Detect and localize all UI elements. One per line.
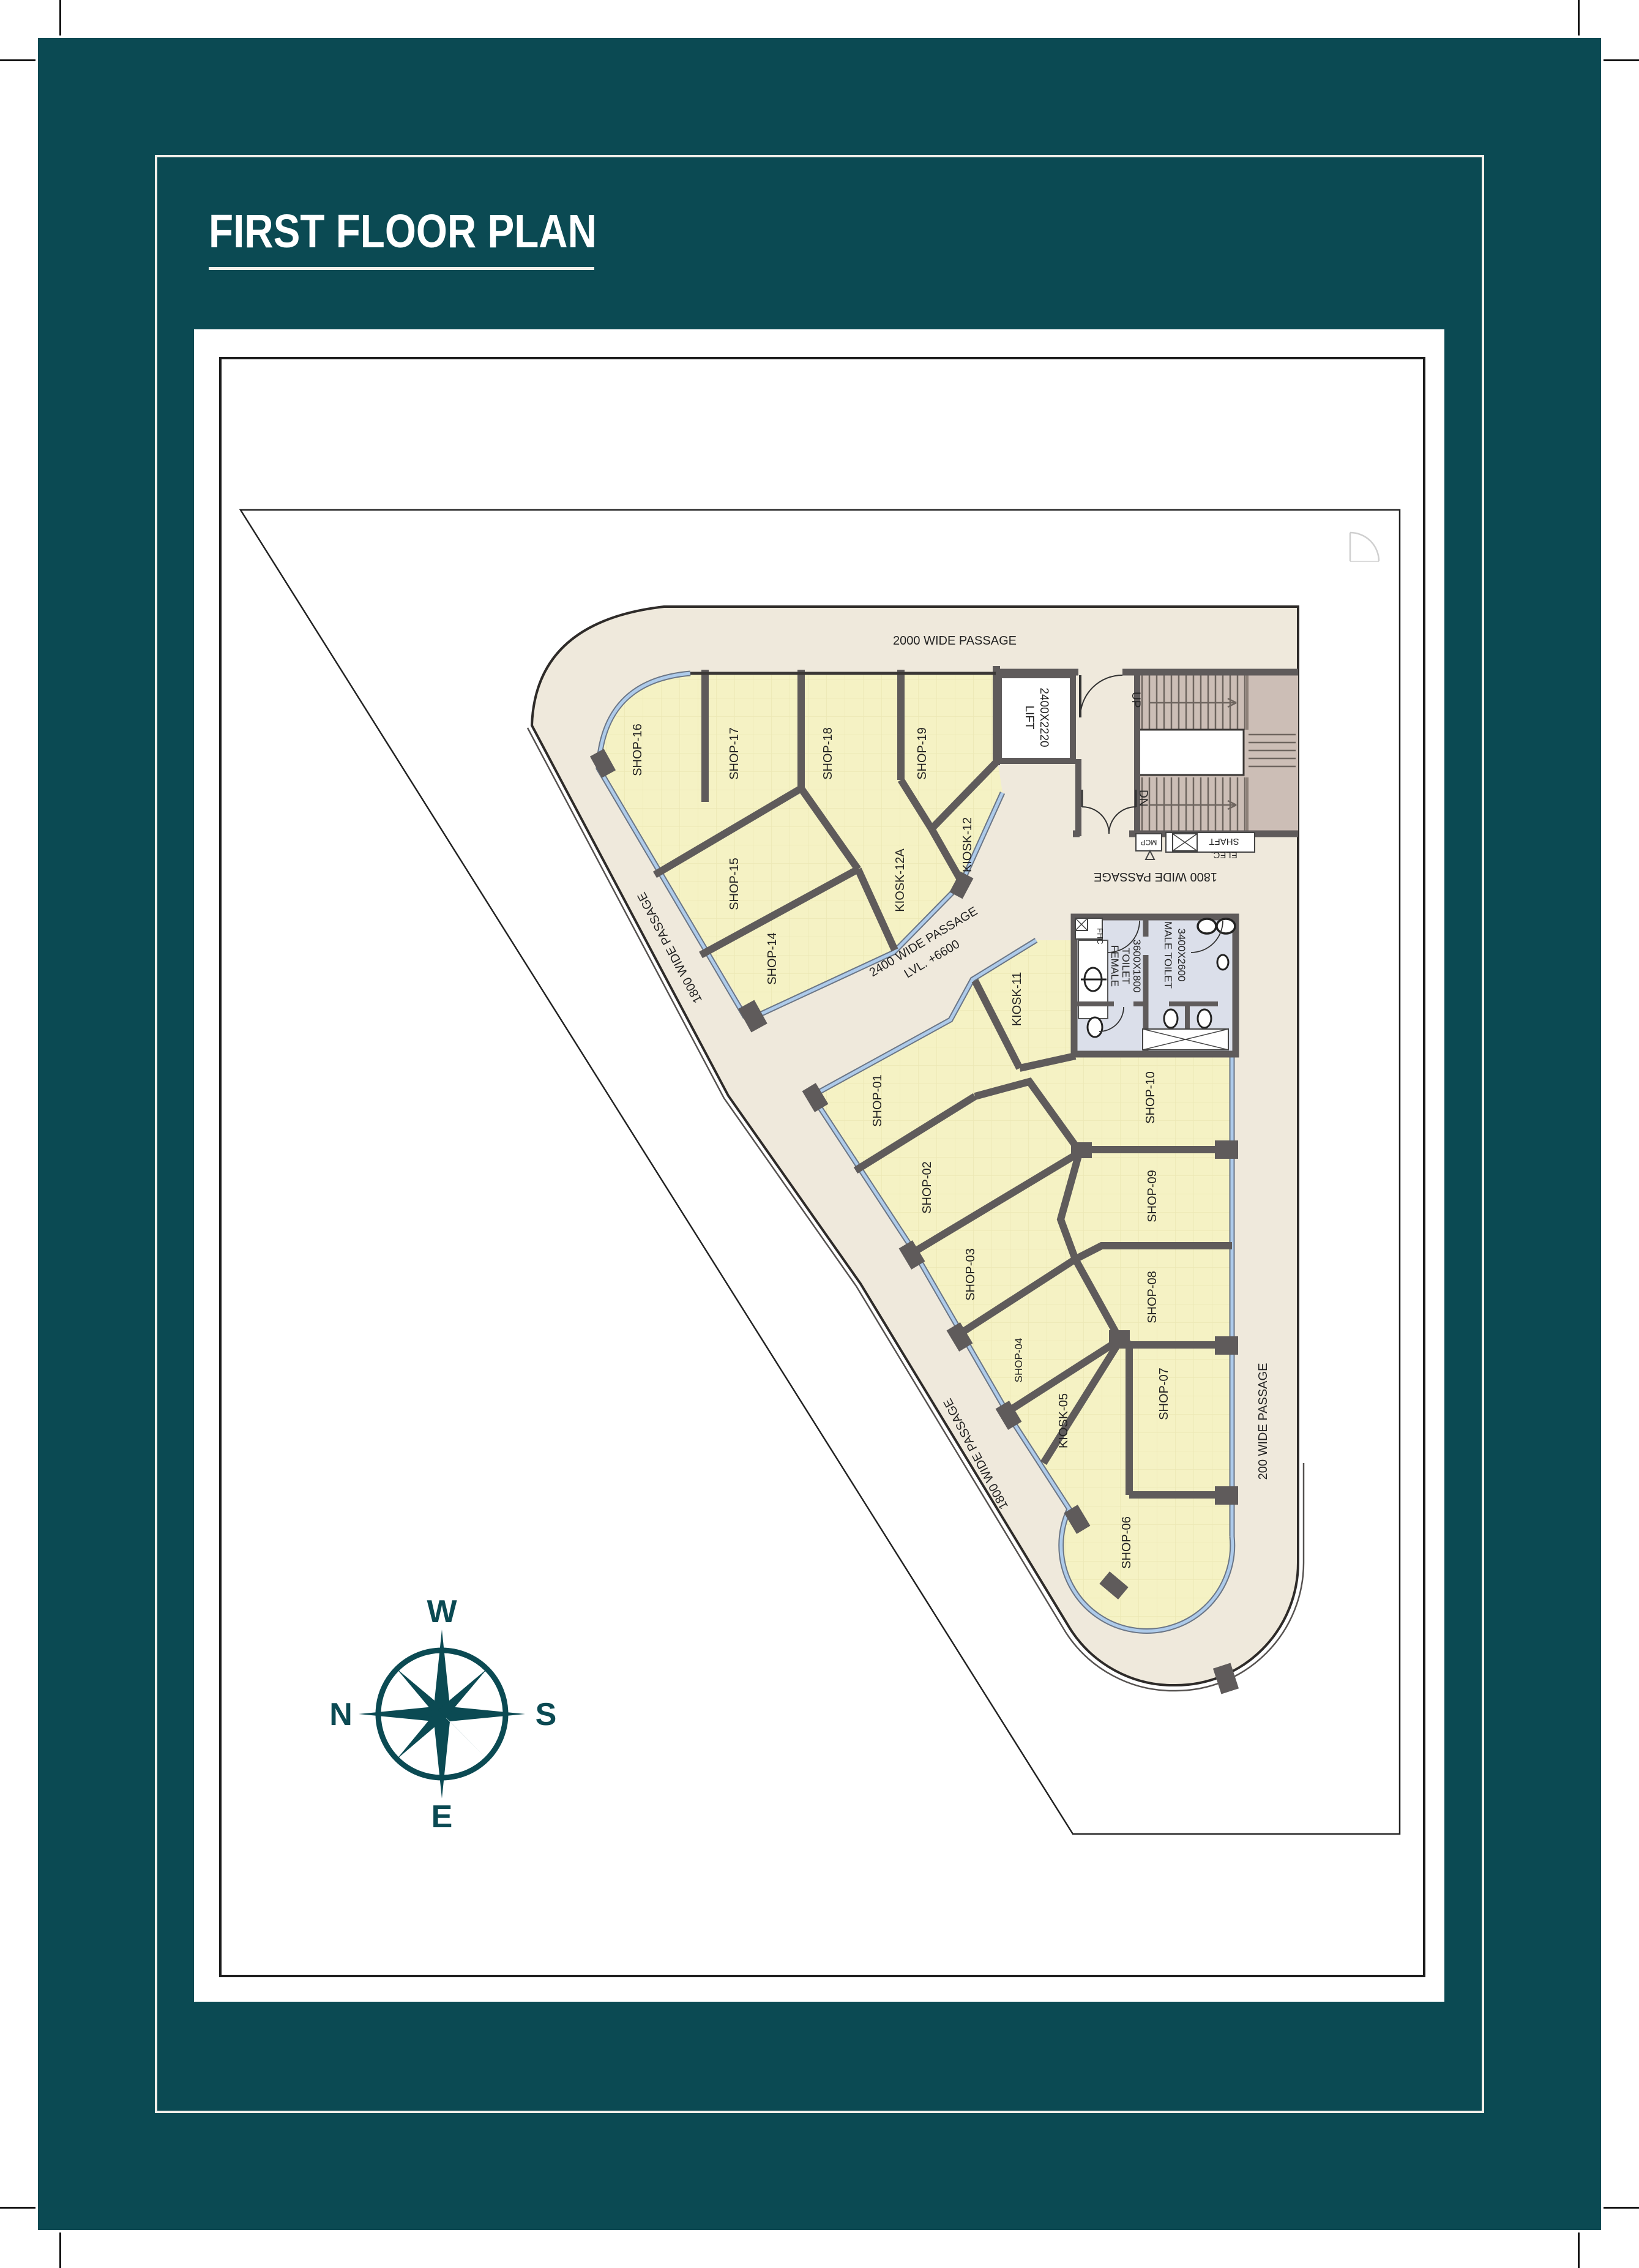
svg-text:SHOP-19: SHOP-19 — [916, 727, 929, 780]
svg-text:SHOP-17: SHOP-17 — [728, 727, 741, 780]
svg-text:SHOP-10: SHOP-10 — [1144, 1071, 1157, 1124]
svg-text:SHOP-16: SHOP-16 — [631, 724, 644, 776]
svg-text:SHOP-03: SHOP-03 — [964, 1248, 977, 1301]
svg-text:2400X2220: 2400X2220 — [1037, 687, 1050, 747]
svg-text:FIRST FLOOR PLAN: FIRST FLOOR PLAN — [209, 205, 597, 258]
svg-text:SHOP-18: SHOP-18 — [821, 727, 835, 780]
svg-text:FHC: FHC — [1096, 928, 1105, 945]
svg-text:SHAFT: SHAFT — [1209, 836, 1239, 847]
svg-text:S: S — [536, 1697, 557, 1732]
svg-text:N: N — [329, 1697, 353, 1732]
svg-text:SHOP-09: SHOP-09 — [1146, 1170, 1159, 1222]
svg-text:1800 WIDE PASSAGE: 1800 WIDE PASSAGE — [1094, 870, 1217, 883]
svg-text:UP: UP — [1129, 692, 1142, 708]
svg-text:W: W — [427, 1594, 457, 1630]
svg-text:MCP: MCP — [1141, 838, 1157, 847]
svg-text:SHOP-04: SHOP-04 — [1013, 1338, 1025, 1383]
svg-text:3400X2600: 3400X2600 — [1176, 929, 1187, 982]
svg-text:KIOSK-12: KIOSK-12 — [961, 817, 974, 872]
svg-text:DN: DN — [1137, 790, 1149, 806]
svg-text:SHOP-08: SHOP-08 — [1146, 1271, 1159, 1323]
svg-text:KIOSK-05: KIOSK-05 — [1057, 1393, 1070, 1448]
svg-text:SHOP-01: SHOP-01 — [871, 1074, 884, 1127]
svg-text:3600X1800: 3600X1800 — [1131, 940, 1143, 993]
svg-text:LIFT: LIFT — [1023, 705, 1036, 729]
svg-text:KIOSK-11: KIOSK-11 — [1010, 972, 1024, 1027]
svg-text:ELEC.: ELEC. — [1211, 850, 1237, 860]
svg-text:SHOP-14: SHOP-14 — [766, 932, 779, 985]
svg-text:200 WIDE PASSAGE: 200 WIDE PASSAGE — [1256, 1363, 1270, 1480]
svg-text:SHOP-07: SHOP-07 — [1157, 1368, 1171, 1420]
svg-text:SHOP-06: SHOP-06 — [1120, 1516, 1133, 1569]
svg-text:2000 WIDE PASSAGE: 2000 WIDE PASSAGE — [893, 634, 1017, 648]
svg-text:SHOP-02: SHOP-02 — [920, 1161, 934, 1214]
svg-text:E: E — [431, 1799, 453, 1835]
svg-text:TOILET: TOILET — [1120, 948, 1132, 984]
svg-text:SHOP-15: SHOP-15 — [728, 858, 741, 910]
svg-text:MALE TOILET: MALE TOILET — [1162, 921, 1174, 989]
svg-text:KIOSK-12A: KIOSK-12A — [894, 848, 907, 912]
